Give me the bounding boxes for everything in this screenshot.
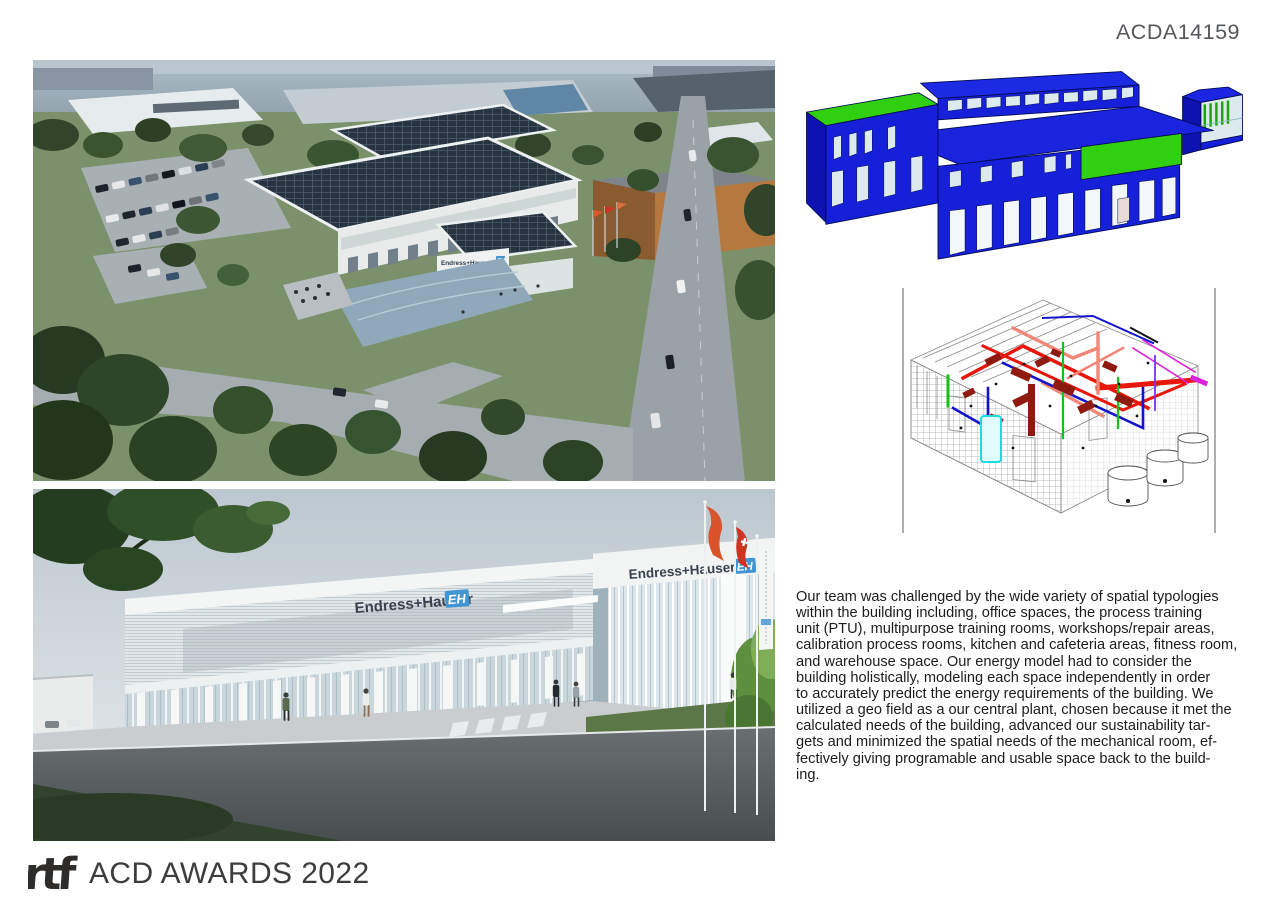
description-line: Our team was challenged by the wide vari…: [796, 589, 1171, 605]
submission-id: ACDA14159: [1116, 20, 1240, 45]
left-canopy-structure: [33, 675, 93, 733]
description-line: gets and minimized the spatial needs of …: [796, 734, 1171, 750]
rtf-logo-text: rtf: [28, 849, 79, 895]
mep-axonometric-diagram: [893, 288, 1225, 538]
award-title: ACD AWARDS 2022: [89, 857, 370, 891]
description-line: utilized a geo field as a our central pl…: [796, 702, 1171, 718]
award-board-page: ACDA14159: [0, 0, 1273, 900]
description-line: calculated needs of the building, advanc…: [796, 718, 1171, 734]
highlighted-unit: [981, 416, 1001, 462]
description-line: ing.: [796, 767, 1171, 783]
street-rendering-image: Endress+Hauser EH Endress+Hauser EH: [33, 489, 775, 841]
aerial-rendering-image: Endress+Hauser EH: [33, 60, 775, 481]
sign-left-logo: EH: [447, 591, 467, 607]
project-description: Our team was challenged by the wide vari…: [796, 589, 1171, 783]
footer: rtf ACD AWARDS 2022: [28, 849, 370, 895]
description-line: building holistically, modeling each spa…: [796, 670, 1171, 686]
description-line: calibration process rooms, kitchen and c…: [796, 637, 1171, 653]
description-line: unit (PTU), multipurpose training rooms,…: [796, 621, 1171, 637]
description-line: within the building including, office sp…: [796, 605, 1171, 621]
energy-model-diagram: [795, 58, 1255, 290]
description-line: fectively giving programable and usable …: [796, 751, 1171, 767]
description-line: to accurately predict the energy require…: [796, 686, 1171, 702]
rtf-logo: rtf: [28, 849, 80, 895]
description-line: and warehouse space. Our energy model ha…: [796, 654, 1171, 670]
